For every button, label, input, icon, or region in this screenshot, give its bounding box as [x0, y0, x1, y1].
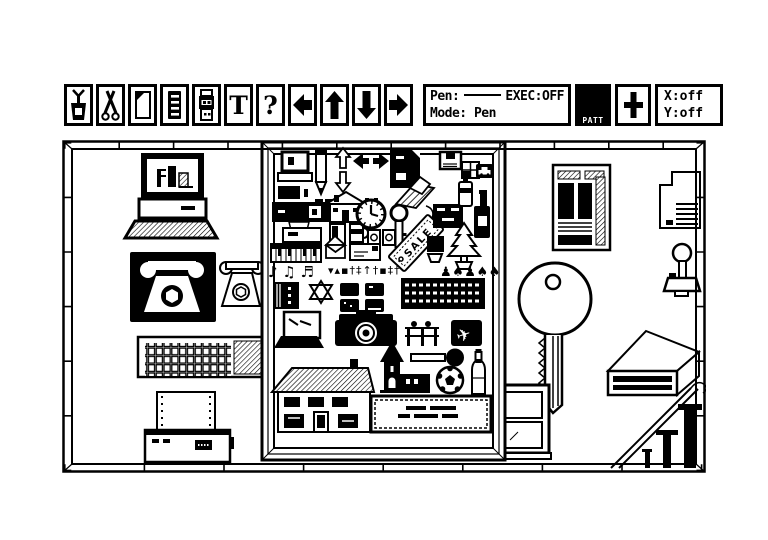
help-button[interactable]: ?: [256, 84, 285, 126]
coords-box: X:off Y:off: [655, 84, 723, 126]
clipart-banner[interactable]: [272, 202, 330, 222]
clipart-jet-inverted[interactable]: ✈: [451, 320, 482, 348]
clipart-film-strip[interactable]: [401, 278, 485, 309]
pattern-label: PATT: [575, 116, 611, 125]
blank-page-icon: [131, 87, 154, 123]
pattern-swatch[interactable]: PATT: [575, 84, 611, 126]
text-tool-button[interactable]: T: [224, 84, 253, 126]
clipart-letter[interactable]: [350, 244, 380, 260]
arrow-left-icon: [291, 87, 314, 123]
film-roll-icon: [195, 87, 218, 123]
cut-tool-button[interactable]: [96, 84, 125, 126]
drawing-app: T ? Pen:: [0, 0, 768, 540]
clipart-people-and-trees[interactable]: ♟♠♟♠♠: [440, 265, 501, 280]
scroll-right-button[interactable]: [384, 84, 413, 126]
clipart-mini-computer[interactable]: [278, 152, 312, 199]
film-tool-button[interactable]: [192, 84, 221, 126]
clipart-newspaper-page[interactable]: [553, 165, 610, 250]
clipart-book[interactable]: [273, 282, 299, 309]
text-icon: T: [229, 93, 248, 118]
arrow-right-icon: [387, 87, 410, 123]
new-page-tool-button[interactable]: [128, 84, 157, 126]
paste-tool-button[interactable]: [64, 84, 93, 126]
exec-status: EXEC:OFF: [505, 88, 564, 105]
clipart-plant-pot[interactable]: [427, 236, 444, 262]
clipart-dresser[interactable]: [433, 204, 463, 228]
drawing-canvas[interactable]: SALE: [62, 140, 706, 473]
arrow-down-icon: [355, 87, 378, 123]
clipart-computer-keyboard[interactable]: [138, 337, 268, 377]
scroll-up-button[interactable]: [320, 84, 349, 126]
question-icon: ?: [263, 93, 278, 118]
scroll-left-button[interactable]: [288, 84, 317, 126]
clipart-car-inverted[interactable]: [476, 164, 493, 178]
status-box: Pen: EXEC:OFF Mode: Pen: [423, 84, 571, 126]
clipart-music-notes[interactable]: ♪ ♫ ♬: [268, 263, 314, 281]
clipart-text-sign[interactable]: [371, 396, 491, 432]
clipart-camera[interactable]: [335, 310, 397, 346]
clipart-glyph-row[interactable]: ▾▴▪†‡↑†▪‡†: [328, 264, 401, 277]
document-tool-button[interactable]: [160, 84, 189, 126]
y-coord-status: Y:off: [664, 105, 714, 122]
clipart-piano-keys[interactable]: [271, 244, 321, 262]
crosshair-button[interactable]: [615, 84, 651, 126]
scissors-icon: [99, 87, 122, 123]
glue-pot-icon: [67, 87, 90, 123]
pen-label: Pen:: [430, 88, 459, 105]
notepad-icon: [163, 87, 186, 123]
clipart-spray-can[interactable]: [459, 177, 472, 206]
clipart-soccer-ball[interactable]: [437, 366, 464, 393]
x-coord-status: X:off: [664, 88, 714, 105]
clipart-floppy-disk[interactable]: [440, 152, 461, 169]
mode-status: Mode: Pen: [430, 105, 496, 122]
plus-icon: [622, 89, 645, 121]
toolbar: T ? Pen:: [64, 84, 723, 126]
arrow-up-icon: [323, 87, 346, 123]
pen-style-preview: [464, 94, 501, 96]
scroll-down-button[interactable]: [352, 84, 381, 126]
clipart-rotary-phone-inverted[interactable]: [130, 252, 216, 322]
clipart-clock[interactable]: [357, 198, 385, 228]
